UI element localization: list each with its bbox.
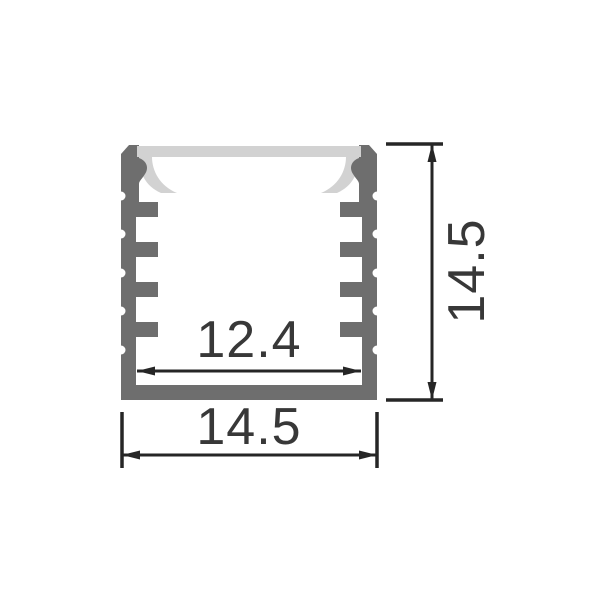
fin-right-1 bbox=[340, 202, 362, 217]
edge-notch bbox=[373, 307, 382, 316]
arrowhead-top bbox=[428, 144, 437, 162]
arrowhead-left bbox=[122, 451, 140, 460]
edge-notch bbox=[117, 269, 126, 278]
drawing-canvas: 12.4 14.5 14.5 bbox=[0, 0, 600, 600]
fin-left-1 bbox=[136, 202, 158, 217]
diffuser-top-bar bbox=[137, 146, 361, 157]
inner-width-label: 12.4 bbox=[196, 311, 301, 369]
edge-notch bbox=[373, 346, 382, 355]
fin-right-2 bbox=[340, 242, 362, 257]
diffuser-cover bbox=[121, 145, 377, 193]
edge-notch bbox=[373, 192, 382, 201]
profile-cross-section-drawing: 12.4 14.5 14.5 bbox=[0, 0, 600, 600]
height-label: 14.5 bbox=[438, 218, 496, 323]
arrowhead-bottom bbox=[428, 382, 437, 400]
fin-right-3 bbox=[340, 282, 362, 297]
fin-left-4 bbox=[136, 322, 158, 337]
inner-width-dimension: 12.4 bbox=[137, 311, 361, 376]
arrowhead-right bbox=[343, 367, 361, 376]
outer-width-dimension: 14.5 bbox=[122, 398, 377, 468]
fin-right-4 bbox=[340, 322, 362, 337]
edge-notch bbox=[117, 230, 126, 239]
fin-left-2 bbox=[136, 242, 158, 257]
edge-notch bbox=[117, 346, 126, 355]
fin-left-3 bbox=[136, 282, 158, 297]
arrowhead-right bbox=[359, 451, 377, 460]
edge-notch bbox=[373, 269, 382, 278]
edge-notch bbox=[117, 192, 126, 201]
height-dimension: 14.5 bbox=[386, 144, 496, 400]
edge-notch bbox=[373, 230, 382, 239]
edge-notch bbox=[117, 307, 126, 316]
arrowhead-left bbox=[137, 367, 155, 376]
outer-width-label: 14.5 bbox=[196, 398, 301, 456]
